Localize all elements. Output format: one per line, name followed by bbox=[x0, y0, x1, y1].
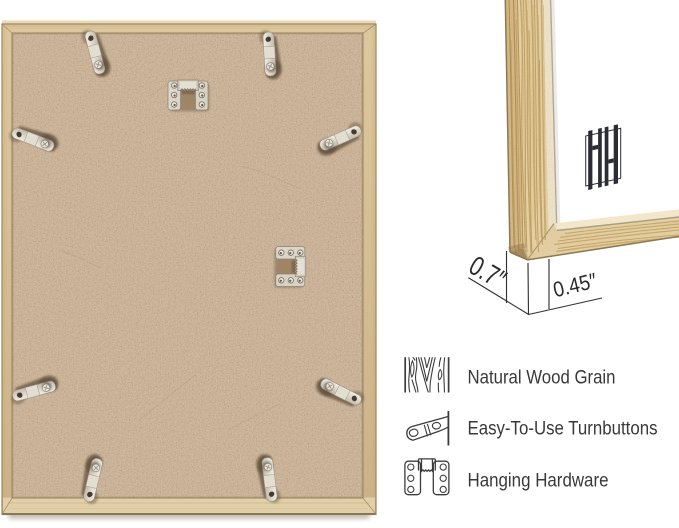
svg-text:Natural Wood Grain: Natural Wood Grain bbox=[468, 367, 616, 389]
svg-text:Hanging Hardware: Hanging Hardware bbox=[468, 470, 609, 492]
svg-text:Easy-To-Use Turnbuttons: Easy-To-Use Turnbuttons bbox=[468, 418, 658, 440]
